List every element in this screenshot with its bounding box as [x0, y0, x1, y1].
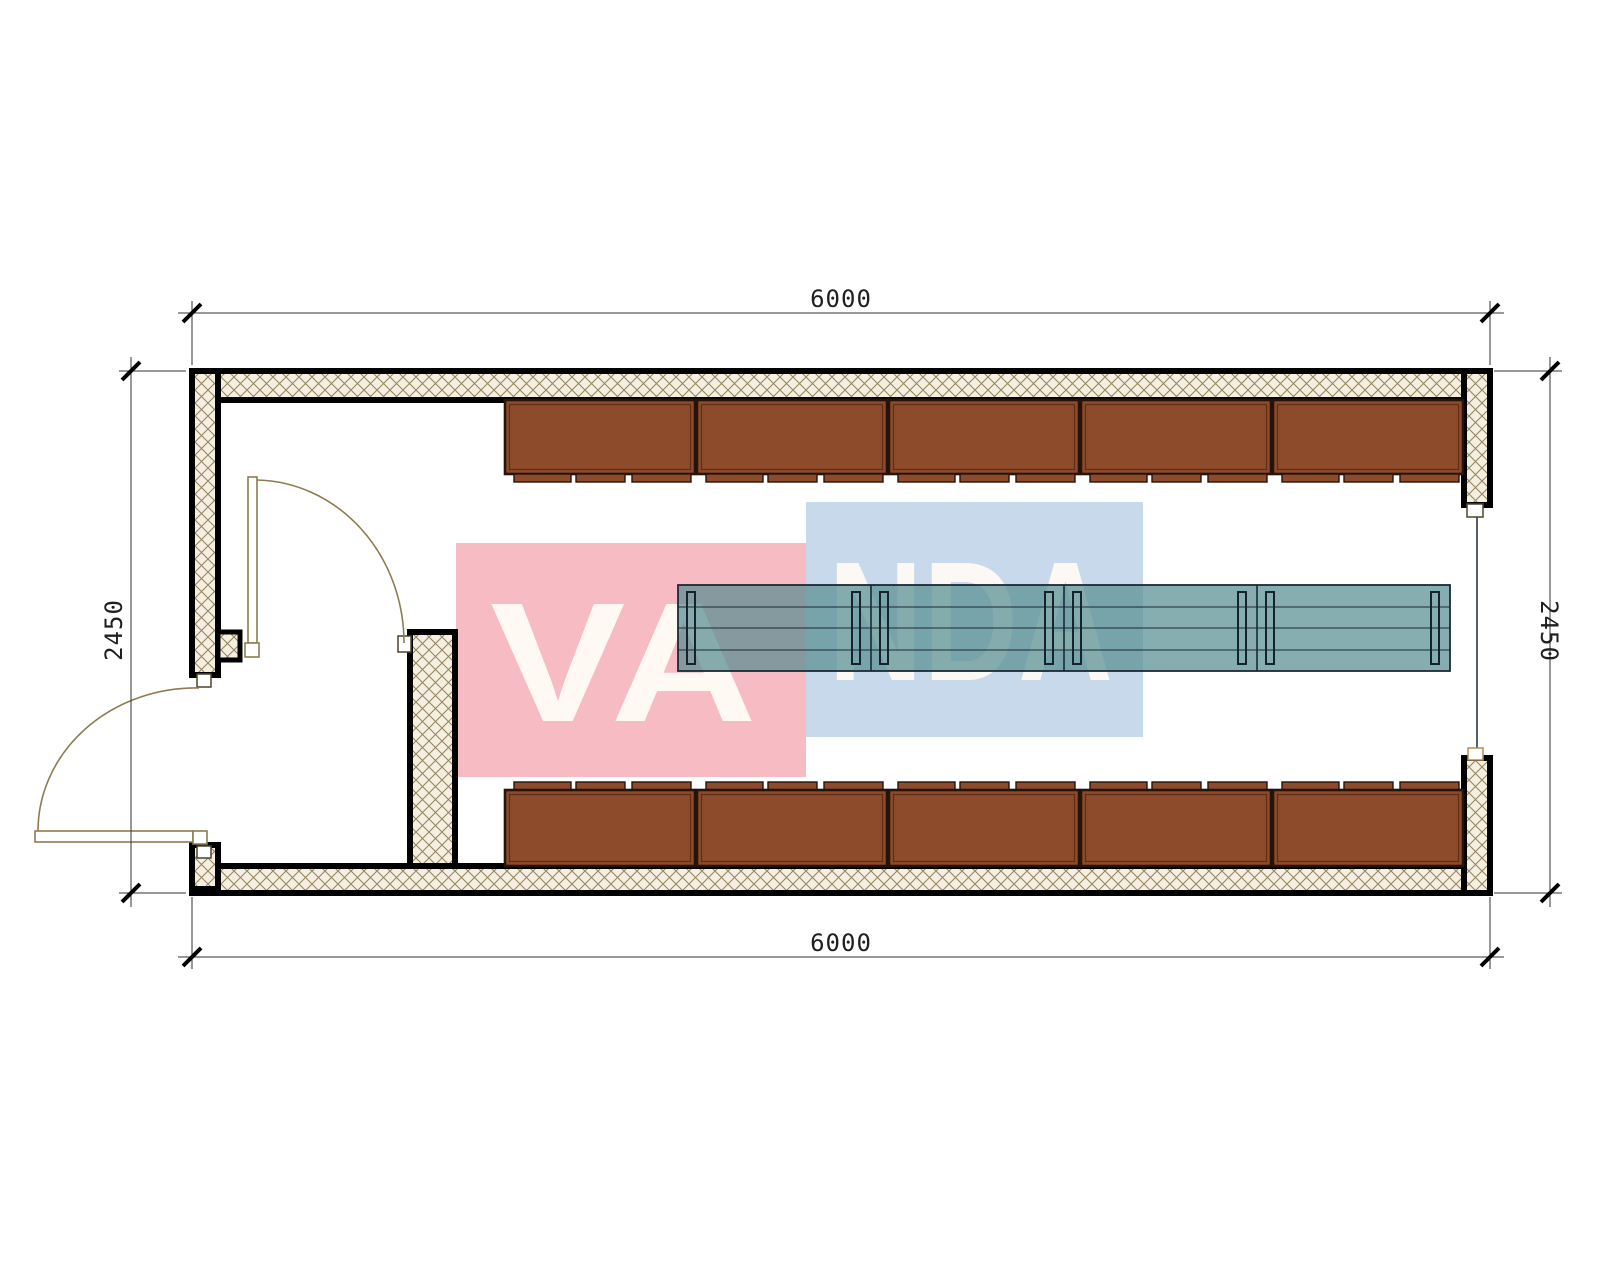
jamb-right-lower-end: [1468, 748, 1483, 760]
dimension-top: 6000: [178, 285, 1504, 365]
cabinet: [697, 782, 887, 866]
wall-partition: [410, 632, 455, 866]
interior-door-hinge: [245, 643, 259, 657]
jamb-left-stub-end: [197, 846, 211, 858]
cabinet-row-top: [505, 400, 1463, 482]
interior-door-leaf: [248, 477, 257, 643]
interior-door: [245, 477, 404, 657]
dimension-bottom-label: 6000: [810, 929, 872, 957]
wall-bottom: [192, 866, 1490, 893]
exterior-door-hinge: [193, 831, 207, 844]
cabinet: [505, 400, 695, 482]
table-group: [678, 585, 1450, 671]
dimension-left: 2450: [100, 357, 186, 907]
wall-top: [192, 371, 1490, 400]
dimension-top-label: 6000: [810, 285, 872, 313]
exterior-door-leaf: [35, 831, 193, 842]
cabinet: [889, 782, 1079, 866]
cabinet: [1273, 782, 1463, 866]
cabinet: [889, 400, 1079, 482]
wall-right-upper-stub: [1464, 371, 1490, 505]
cabinet: [505, 782, 695, 866]
cabinet-row-bottom: [505, 782, 1463, 866]
jamb-left-wall-end: [197, 674, 211, 687]
dimension-right-label: 2450: [1535, 600, 1563, 662]
cabinet: [1273, 400, 1463, 482]
cabinet: [1081, 400, 1271, 482]
cabinet: [1081, 782, 1271, 866]
exterior-door-arc: [38, 688, 199, 831]
exterior-door: [35, 688, 207, 844]
dimension-bottom: 6000: [178, 897, 1504, 969]
wall-left-jamb-block: [218, 632, 240, 660]
jamb-right-upper-end: [1467, 504, 1483, 517]
floor-plan-svg: VA NDA: [0, 0, 1600, 1280]
dimension-left-label: 2450: [100, 599, 128, 661]
interior-door-arc: [257, 480, 404, 643]
dimension-right: 2450: [1494, 357, 1563, 907]
wall-right-lower-stub: [1464, 758, 1490, 893]
wall-left-upper: [192, 371, 218, 675]
floor-plan-page: VA NDA: [0, 0, 1600, 1280]
cabinet: [697, 400, 887, 482]
